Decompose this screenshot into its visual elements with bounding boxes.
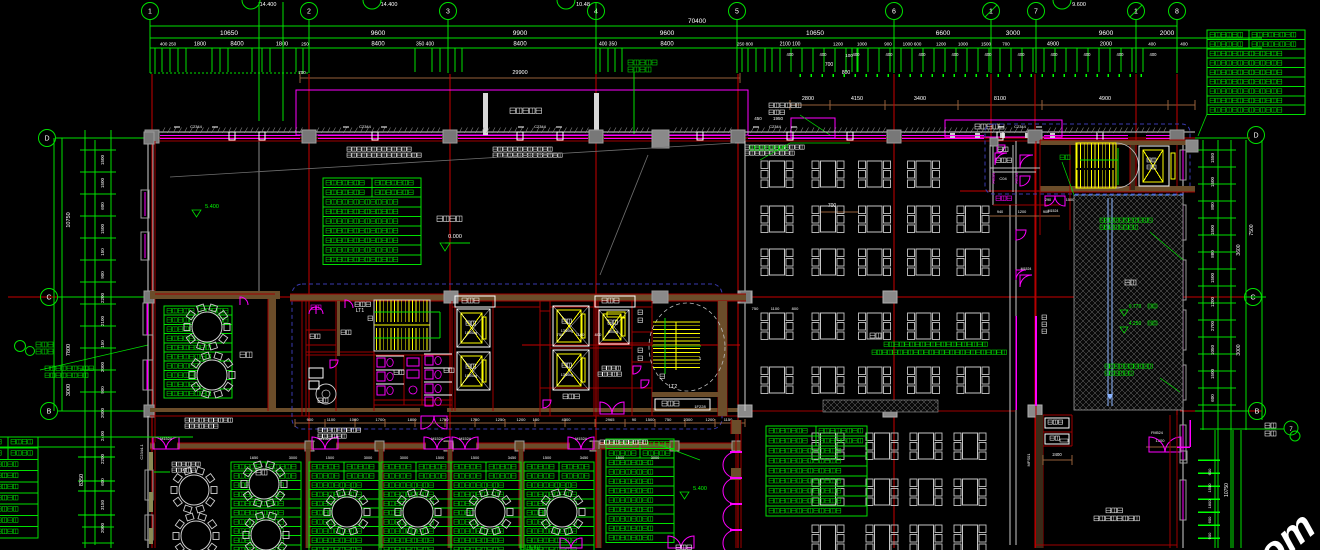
- svg-text:8400: 8400: [230, 42, 244, 48]
- svg-text:1950: 1950: [773, 116, 784, 121]
- svg-text:400: 400: [1084, 52, 1092, 57]
- svg-text:2100: 2100: [100, 315, 105, 326]
- svg-text:290: 290: [1045, 198, 1051, 202]
- svg-text:1000: 1000: [958, 42, 969, 47]
- svg-text:C: C: [46, 295, 51, 302]
- svg-text:400: 400: [886, 52, 894, 57]
- svg-text:10750: 10750: [66, 212, 72, 227]
- svg-text:1500: 1500: [100, 223, 105, 234]
- svg-text:5.400: 5.400: [205, 204, 219, 210]
- svg-text:4900: 4900: [1047, 42, 1059, 48]
- svg-text:900: 900: [884, 42, 892, 47]
- svg-text:1050: 1050: [1210, 344, 1215, 355]
- svg-text:900: 900: [307, 417, 314, 422]
- svg-text:1: 1: [1134, 9, 1138, 16]
- svg-text:1200: 1200: [706, 417, 716, 422]
- svg-text:1650: 1650: [250, 456, 258, 460]
- svg-text:1500: 1500: [100, 154, 105, 165]
- svg-text:2000: 2000: [1100, 42, 1112, 48]
- svg-text:400: 400: [1150, 52, 1158, 57]
- svg-text:5: 5: [735, 9, 739, 16]
- svg-text:600: 600: [1207, 468, 1212, 475]
- svg-text:350 400: 350 400: [416, 42, 434, 48]
- svg-text:3000: 3000: [66, 384, 72, 396]
- svg-text:B: B: [1255, 409, 1260, 416]
- svg-text:3000: 3000: [289, 456, 297, 460]
- svg-text:1500: 1500: [1210, 224, 1215, 235]
- svg-text:1500: 1500: [981, 42, 992, 47]
- svg-text:150: 150: [533, 417, 540, 422]
- svg-text:LT2: LT2: [669, 384, 677, 390]
- svg-text:2000: 2000: [1160, 30, 1175, 37]
- svg-text:400: 400: [787, 52, 795, 57]
- svg-text:7500: 7500: [1249, 224, 1255, 235]
- svg-text:2200: 2200: [100, 292, 105, 303]
- svg-text:C2344: C2344: [1014, 124, 1027, 129]
- svg-text:700: 700: [825, 62, 834, 68]
- svg-text:2000: 2000: [100, 407, 105, 418]
- svg-text:1200: 1200: [517, 417, 527, 422]
- svg-text:1800: 1800: [1207, 499, 1212, 509]
- svg-text:1500: 1500: [1210, 176, 1215, 187]
- svg-text:1100: 1100: [327, 417, 336, 422]
- svg-text:400: 400: [985, 52, 993, 57]
- svg-text:14.400: 14.400: [381, 2, 398, 8]
- svg-text:1550: 1550: [1210, 152, 1215, 163]
- svg-text:400: 400: [952, 52, 960, 57]
- svg-text:400: 400: [1018, 52, 1026, 57]
- svg-text:100: 100: [845, 53, 853, 58]
- svg-text:1800: 1800: [276, 42, 288, 48]
- svg-text:800: 800: [842, 70, 851, 76]
- svg-text:1500: 1500: [326, 456, 334, 460]
- svg-text:FM524: FM524: [1015, 173, 1019, 184]
- svg-text:7800: 7800: [66, 344, 72, 356]
- svg-text:6: 6: [892, 9, 896, 16]
- svg-text:3000: 3000: [1006, 30, 1021, 37]
- svg-text:C2344: C2344: [190, 124, 203, 129]
- svg-text:5.400: 5.400: [693, 486, 707, 492]
- svg-text:400: 400: [1051, 52, 1059, 57]
- svg-text:9.600: 9.600: [1072, 2, 1086, 8]
- svg-text:8400: 8400: [660, 42, 674, 48]
- svg-text:900: 900: [1207, 532, 1212, 539]
- svg-text:1000: 1000: [350, 417, 360, 422]
- svg-text:3000: 3000: [1236, 344, 1242, 355]
- svg-text:900: 900: [100, 271, 105, 279]
- svg-text:1: 1: [148, 9, 152, 16]
- svg-text:800: 800: [792, 306, 799, 311]
- svg-text:1500: 1500: [1066, 198, 1074, 202]
- svg-text:400: 400: [853, 52, 861, 57]
- svg-text:1500: 1500: [616, 456, 624, 460]
- svg-text:FM524: FM524: [1151, 431, 1163, 435]
- svg-text:4150: 4150: [851, 96, 863, 102]
- svg-text:2800: 2800: [802, 96, 814, 102]
- svg-text:1750: 1750: [440, 417, 450, 422]
- svg-text:3: 3: [446, 9, 450, 16]
- svg-text:400 350: 400 350: [599, 42, 617, 48]
- svg-text:LT1: LT1: [356, 308, 364, 314]
- svg-text:8400: 8400: [513, 42, 527, 48]
- svg-text:3000: 3000: [364, 456, 372, 460]
- svg-text:1100: 1100: [576, 332, 585, 337]
- svg-text:D: D: [1253, 133, 1258, 140]
- svg-text:1500: 1500: [471, 456, 479, 460]
- svg-text:150: 150: [100, 340, 105, 348]
- svg-text:2700: 2700: [1210, 320, 1215, 331]
- svg-text:1000: 1000: [857, 42, 868, 47]
- svg-text:750: 750: [665, 417, 672, 422]
- svg-text:2400: 2400: [1052, 452, 1062, 457]
- svg-text:FM524: FM524: [992, 173, 996, 184]
- svg-text:1250: 1250: [496, 417, 506, 422]
- svg-text:800: 800: [1210, 202, 1215, 210]
- svg-text:2: 2: [307, 9, 311, 16]
- svg-text:4300: 4300: [562, 417, 572, 422]
- svg-text:2965: 2965: [606, 417, 616, 422]
- svg-text:800: 800: [595, 332, 602, 337]
- svg-text:1100: 1100: [771, 306, 780, 311]
- svg-text:4.250: 4.250: [1129, 321, 1142, 327]
- svg-text:1500: 1500: [436, 456, 444, 460]
- svg-text:C: C: [1250, 295, 1255, 302]
- svg-text:900: 900: [100, 386, 105, 394]
- svg-text:1200: 1200: [1210, 296, 1215, 307]
- svg-text:M1524: M1524: [1021, 267, 1032, 271]
- svg-text:2200: 2200: [100, 453, 105, 464]
- svg-text:1F228: 1F228: [694, 404, 706, 409]
- svg-text:1200: 1200: [833, 42, 844, 47]
- svg-text:400 250: 400 250: [160, 42, 177, 47]
- svg-text:3450: 3450: [580, 456, 588, 460]
- svg-text:450: 450: [754, 116, 762, 121]
- svg-text:8: 8: [1175, 9, 1179, 16]
- svg-text:250 800: 250 800: [737, 42, 754, 47]
- svg-text:MFS01: MFS01: [1026, 453, 1031, 467]
- svg-text:1500: 1500: [1210, 272, 1215, 283]
- svg-text:400: 400: [1180, 42, 1188, 47]
- svg-text:150: 150: [100, 248, 105, 256]
- svg-text:3150: 3150: [100, 499, 105, 510]
- svg-text:9600: 9600: [1099, 30, 1114, 37]
- svg-text:10.48: 10.48: [576, 2, 590, 8]
- svg-text:90: 90: [632, 417, 637, 422]
- svg-text:1200: 1200: [1018, 210, 1026, 214]
- svg-text:9600: 9600: [371, 30, 386, 37]
- svg-text:C2344: C2344: [534, 124, 547, 129]
- svg-text:400: 400: [1148, 42, 1156, 47]
- svg-text:9900: 9900: [513, 30, 528, 37]
- svg-text:1350kg: 1350kg: [561, 373, 573, 377]
- svg-text:600: 600: [100, 478, 105, 486]
- svg-text:8350: 8350: [79, 474, 85, 486]
- svg-text:C04: C04: [999, 176, 1007, 181]
- svg-text:700: 700: [1002, 42, 1010, 47]
- svg-text:800kg: 800kg: [608, 330, 618, 334]
- svg-text:600: 600: [100, 202, 105, 210]
- svg-text:3600: 3600: [1236, 244, 1242, 255]
- svg-text:7: 7: [1034, 9, 1038, 16]
- svg-text:1750: 1750: [471, 417, 481, 422]
- svg-text:1700: 1700: [376, 417, 386, 422]
- svg-text:700: 700: [298, 70, 306, 75]
- svg-text:1000kg: 1000kg: [465, 331, 477, 335]
- svg-text:M1524: M1524: [160, 437, 172, 441]
- svg-text:1: 1: [989, 9, 993, 16]
- svg-text:0.000: 0.000: [448, 234, 462, 240]
- svg-text:3000: 3000: [400, 456, 408, 460]
- svg-text:M1524: M1524: [575, 437, 587, 441]
- svg-text:10650: 10650: [220, 30, 238, 37]
- svg-text:1500: 1500: [100, 177, 105, 188]
- svg-text:600: 600: [1207, 516, 1212, 523]
- svg-text:29900: 29900: [512, 70, 527, 76]
- svg-text:250: 250: [301, 42, 309, 47]
- svg-text:10650: 10650: [806, 30, 824, 37]
- svg-text:400: 400: [919, 52, 927, 57]
- svg-text:1000kg: 1000kg: [465, 374, 477, 378]
- svg-text:C2344-1: C2344-1: [139, 444, 144, 460]
- svg-text:M1524: M1524: [431, 437, 443, 441]
- svg-text:C2344: C2344: [359, 124, 372, 129]
- svg-text:3000: 3000: [651, 456, 659, 460]
- svg-text:14.400: 14.400: [260, 2, 277, 8]
- svg-text:9600: 9600: [660, 30, 675, 37]
- svg-text:750: 750: [557, 332, 564, 337]
- svg-text:750: 750: [752, 306, 759, 311]
- svg-text:940: 940: [997, 210, 1003, 214]
- svg-text:1800: 1800: [194, 42, 206, 48]
- svg-text:600: 600: [1210, 394, 1215, 402]
- svg-text:D: D: [44, 136, 49, 143]
- svg-text:2300: 2300: [684, 417, 694, 422]
- svg-text:2400: 2400: [100, 430, 105, 441]
- svg-text:8400: 8400: [371, 42, 385, 48]
- svg-text:M1524: M1524: [459, 437, 471, 441]
- svg-text:4900: 4900: [1099, 96, 1111, 102]
- svg-text:8100: 8100: [994, 96, 1006, 102]
- svg-text:1800: 1800: [408, 417, 418, 422]
- svg-text:1500: 1500: [646, 417, 656, 422]
- svg-text:400: 400: [820, 52, 828, 57]
- svg-text:M1524: M1524: [1048, 209, 1059, 213]
- svg-text:400: 400: [1117, 52, 1125, 57]
- svg-text:3450: 3450: [508, 456, 516, 460]
- svg-text:2100 100: 2100 100: [780, 42, 801, 48]
- svg-text:70400: 70400: [688, 18, 706, 25]
- svg-text:1000 600: 1000 600: [903, 42, 922, 47]
- svg-text:B: B: [47, 409, 52, 416]
- svg-text:10750: 10750: [1224, 483, 1230, 497]
- svg-text:2000: 2000: [100, 522, 105, 533]
- svg-text:1500: 1500: [543, 456, 551, 460]
- svg-text:1500: 1500: [1207, 483, 1212, 493]
- svg-text:6600: 6600: [936, 30, 951, 37]
- svg-text:1500: 1500: [1210, 368, 1215, 379]
- svg-text:C2344: C2344: [769, 124, 782, 129]
- svg-text:1200: 1200: [936, 42, 947, 47]
- svg-text:9.770: 9.770: [1129, 304, 1142, 310]
- svg-text:2000: 2000: [100, 361, 105, 372]
- svg-text:3400: 3400: [914, 96, 926, 102]
- svg-text:880: 880: [1210, 250, 1215, 258]
